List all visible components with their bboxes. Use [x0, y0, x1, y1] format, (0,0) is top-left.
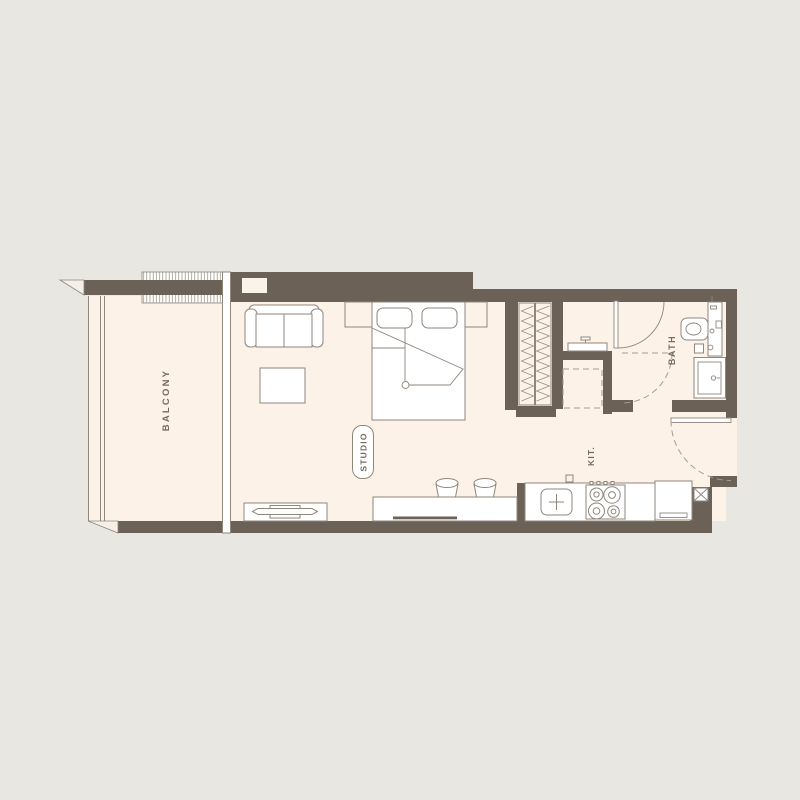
wall-bath-bottom — [672, 400, 737, 412]
wall-niche — [242, 278, 267, 293]
floor-plan: BALCONY STUDIO KIT. BATH — [0, 0, 800, 800]
tv-screen — [253, 509, 318, 515]
fridge — [655, 481, 692, 520]
bar-stool — [436, 479, 458, 498]
coffee-table — [260, 368, 305, 403]
nightstand-right — [465, 302, 487, 327]
wall-closet-bottom — [516, 406, 556, 417]
service-shaft — [694, 488, 708, 501]
pillow — [377, 308, 412, 328]
sofa — [245, 305, 323, 347]
floor-plan-page: BALCONY STUDIO KIT. BATH — [0, 0, 800, 800]
wall-hall-left — [603, 351, 612, 414]
stove — [586, 482, 625, 520]
studio-label-badge: STUDIO — [353, 426, 374, 479]
entry-floor — [726, 418, 737, 476]
wall-bottom — [118, 521, 712, 533]
shower-tray — [694, 358, 726, 399]
window-mullion — [223, 272, 231, 533]
wardrobe — [519, 303, 551, 405]
nightstand-left — [345, 302, 372, 327]
balcony-parapet — [83, 280, 223, 295]
label-bath: BATH — [667, 335, 677, 365]
bar-stool — [474, 479, 496, 498]
wall-closet-left — [505, 293, 518, 410]
bathroom-vanity — [708, 302, 722, 356]
label-balcony: BALCONY — [161, 369, 172, 431]
label-studio: STUDIO — [359, 432, 369, 471]
pillow — [422, 308, 457, 328]
wall-hall-foot — [612, 400, 633, 412]
door-leaf — [671, 418, 731, 423]
tv-console — [244, 503, 327, 521]
bath-small-unit — [695, 344, 704, 353]
toilet — [681, 318, 708, 340]
wall-right — [726, 292, 737, 418]
door-leaf — [614, 301, 618, 348]
bar-counter — [373, 497, 517, 521]
wall-entry-corner — [710, 476, 737, 487]
utility-shelf — [568, 343, 607, 351]
balcony-floor — [88, 296, 223, 521]
label-kitchen: KIT. — [586, 446, 596, 466]
wall-kitchen-stub — [517, 483, 525, 521]
